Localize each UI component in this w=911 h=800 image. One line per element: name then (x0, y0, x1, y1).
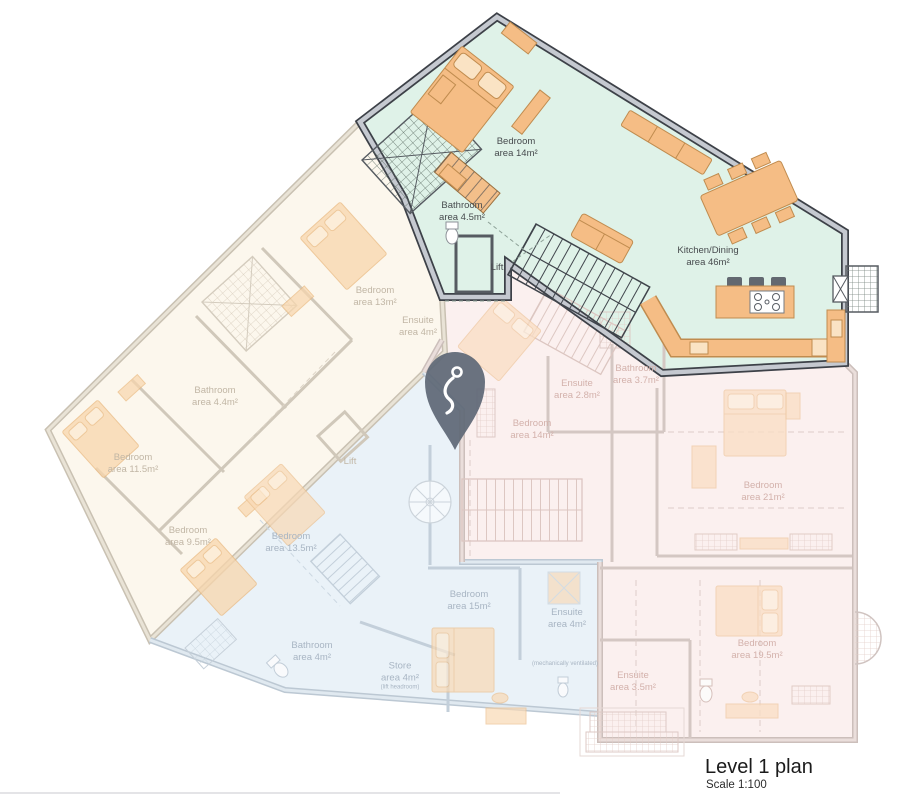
floorplan-canvas: Bedroomarea 14m² Bathroomarea 4.5m² Lift… (0, 0, 911, 800)
stairs-east-center (462, 479, 582, 541)
bed (432, 628, 494, 692)
kitchen-island (716, 277, 794, 318)
spiral-stair (409, 481, 451, 523)
plan-title: Level 1 plan (705, 756, 813, 779)
plan-scale: Scale 1:100 (706, 779, 767, 791)
floorplan-drawing (0, 0, 911, 800)
bay-window (855, 612, 881, 664)
room-note-mechanically-ventilated: (mechanically ventilated) (532, 661, 598, 667)
radiator (792, 686, 830, 704)
toilet (700, 679, 712, 702)
sheet-edge-line (0, 792, 560, 794)
shower (548, 572, 580, 604)
bed (716, 586, 782, 636)
bed (724, 390, 786, 456)
